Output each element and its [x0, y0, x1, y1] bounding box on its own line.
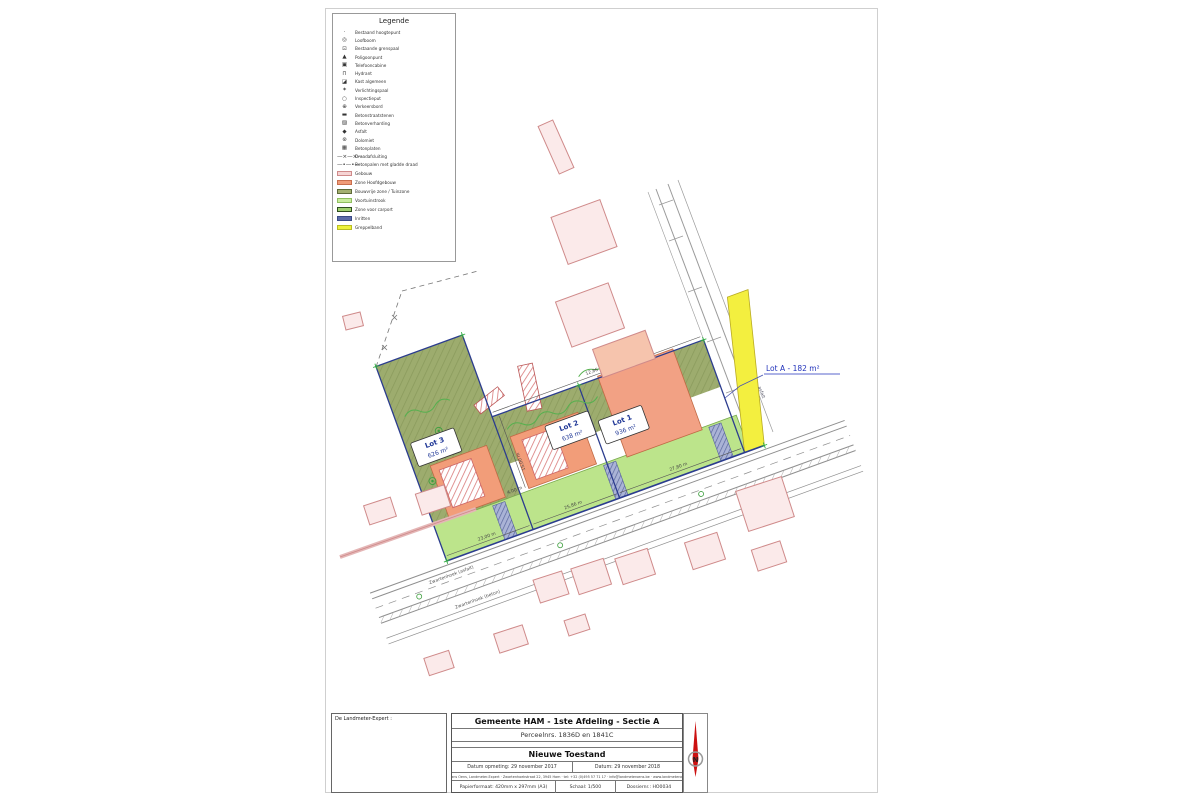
legend-item-label: Betonstraatstenen [355, 113, 394, 118]
date-plan: Datum: 29 november 2018 [572, 762, 682, 772]
front-garden-swatch [337, 198, 352, 203]
legend-item-label: Greppelband [355, 225, 382, 230]
legend-symbol-list: · Bestaand hoogtepunt ◎ Loofboom ⊡ Besta… [337, 28, 451, 169]
legend-item: ◪ Kast algemeen [337, 78, 451, 86]
existing-shed [518, 363, 542, 411]
title-municipality: Gemeente HAM - 1ste Afdeling - Sectie A [452, 714, 682, 729]
legend-item: ✶ Verlichtingspaal [337, 86, 451, 94]
elevation-point-icon: · [337, 28, 352, 36]
legend-item: Inritten [337, 214, 451, 223]
light-pole-icon: ✶ [337, 86, 352, 94]
title-meta-row: Papierformaat: 420mm x 297mm (A3) Schaal… [452, 781, 682, 793]
legend-item-label: Loofboom [355, 38, 376, 43]
hydrant-icon: ⊓ [337, 70, 352, 78]
legend-item-label: Betonpalen met gladde draad [355, 162, 418, 167]
surveyor-box: De Landmeter-Expert : [331, 713, 447, 793]
concrete-surface-icon: ▨ [337, 119, 352, 127]
title-dates-row: Datum opmeting: 29 november 2017 Datum: … [452, 762, 682, 773]
legend-item-label: Bouwvrije zone / Tuinzone [355, 189, 409, 194]
utility-cabinet-icon: ◪ [337, 78, 352, 86]
concrete-slabs-icon: ▦ [337, 144, 352, 152]
legend-item-label: Inritten [355, 216, 370, 221]
legend-item-label: Inspectieput [355, 96, 381, 101]
post-wire-line-icon: —•—•— [337, 161, 352, 169]
legend-item: ▬ Betonstraatstenen [337, 111, 451, 119]
legend-item-label: Zone voor carport [355, 207, 393, 212]
main-building-zone-swatch [337, 180, 352, 185]
garden-zone-swatch [337, 189, 352, 194]
legend-item-label: Asfalt [355, 129, 367, 134]
legend-item-label: Bestaande grenspaal [355, 46, 399, 51]
legend-item-label: Betonverharding [355, 121, 390, 126]
legend-item-label: Voortuinstrook [355, 198, 386, 203]
title-contact: Ing. Hans Oens, Landmeter-Expert · Zwart… [452, 773, 682, 781]
legend-item-label: Bestaand hoogtepunt [355, 30, 400, 35]
title-parcels: Perceelnrs. 1836D en 1841C [452, 729, 682, 742]
dossier-number: Dossiernr.: HO0034 [615, 781, 682, 793]
legend-item: ▦ Betonplaten [337, 144, 451, 152]
title-state: Nieuwe Toestand [452, 748, 682, 762]
north-arrow-icon: N [684, 715, 707, 791]
legend-item: ⊛ Dolomiet [337, 136, 451, 144]
wire-fence-line-icon: —×—×— [337, 153, 352, 161]
title-block: Gemeente HAM - 1ste Afdeling - Sectie A … [451, 713, 683, 793]
polygon-point-icon: ▲ [337, 53, 352, 61]
legend-item: ○ Inspectieput [337, 94, 451, 102]
legend-item: ▨ Betonverharding [337, 119, 451, 127]
legend-item-label: Verlichtingspaal [355, 88, 388, 93]
paving-stones-icon: ▬ [337, 111, 352, 119]
legend-item-label: Gebouw [355, 171, 372, 176]
legend-item: Zone Hoofdgebouw [337, 178, 451, 187]
legend-item: Gebouw [337, 169, 451, 178]
asphalt-icon: ◆ [337, 128, 352, 136]
legend-title: Legende [337, 17, 451, 25]
building-swatch [337, 171, 352, 176]
surveyor-heading: De Landmeter-Expert : [335, 716, 443, 722]
lot-a-label: Lot A - 182 m² [766, 364, 820, 373]
legend-item: · Bestaand hoogtepunt [337, 28, 451, 36]
dolomite-icon: ⊛ [337, 136, 352, 144]
legend-panel: Legende · Bestaand hoogtepunt ◎ Loofboom… [332, 13, 456, 262]
legend-item: Voortuinstrook [337, 196, 451, 205]
legend-item-label: Zone Hoofdgebouw [355, 180, 396, 185]
tree-icon: ◎ [337, 36, 352, 44]
legend-item: Greppelband [337, 223, 451, 232]
manhole-icon: ○ [337, 95, 352, 103]
legend-item-label: Verkeersbord [355, 104, 383, 109]
carport-zone-swatch [337, 207, 352, 212]
north-label: N [693, 756, 699, 764]
legend-item-label: Kast algemeen [355, 79, 386, 84]
driveway-swatch [337, 216, 352, 221]
legend-item: —×—×— Draadafsluiting [337, 152, 451, 160]
paper-format: Papierformaat: 420mm x 297mm (A3) [452, 781, 555, 793]
legend-item-label: Poligoonpunt [355, 55, 382, 60]
legend-item-label: Betonplaten [355, 146, 381, 151]
legend-item: Zone voor carport [337, 205, 451, 214]
legend-item-label: Draadafsluiting [355, 154, 387, 159]
street-label: Zwartenhoek (asfalt) [428, 564, 475, 586]
plan-sheet: 23,00 m 25,86 m 27,80 m 15,00 m 4,00 m 1… [325, 8, 878, 793]
legend-item: —•—•— Betonpalen met gladde draad [337, 161, 451, 169]
legend-item: ⊡ Bestaande grenspaal [337, 45, 451, 53]
telecom-cabinet-icon: ▣ [337, 61, 352, 69]
legend-item: Bouwvrije zone / Tuinzone [337, 187, 451, 196]
legend-swatch-list: Gebouw Zone Hoofdgebouw Bouwvrije zone /… [337, 169, 451, 232]
date-survey: Datum opmeting: 29 november 2017 [452, 762, 572, 772]
legend-item: ⊓ Hydrant [337, 69, 451, 77]
legend-item: ◆ Asfalt [337, 128, 451, 136]
scale: Schaal: 1/500 [555, 781, 615, 793]
legend-item-label: Dolomiet [355, 138, 374, 143]
legend-item: ▲ Poligoonpunt [337, 53, 451, 61]
boundary-post-icon: ⊡ [337, 45, 352, 53]
traffic-sign-icon: ⊕ [337, 103, 352, 111]
legend-item: ▣ Telefooncabine [337, 61, 451, 69]
north-arrow-box: N [683, 713, 708, 793]
gutter-band-swatch [337, 225, 352, 230]
legend-item: ◎ Loofboom [337, 36, 451, 44]
legend-item: ⊕ Verkeersbord [337, 103, 451, 111]
legend-item-label: Telefooncabine [355, 63, 386, 68]
legend-item-label: Hydrant [355, 71, 372, 76]
